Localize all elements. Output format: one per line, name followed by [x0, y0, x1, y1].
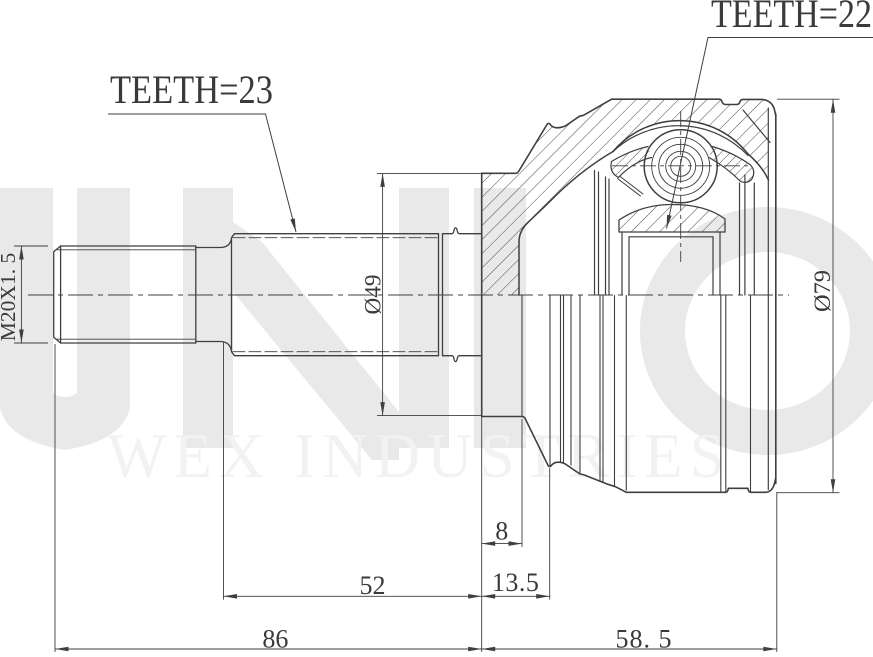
svg-text:52: 52: [360, 571, 386, 600]
svg-text:TEETH=23: TEETH=23: [110, 67, 273, 112]
svg-text:WEX INDUSTRIES: WEX INDUSTRIES: [107, 421, 732, 491]
svg-text:Ø49: Ø49: [361, 275, 386, 315]
svg-text:TEETH=22: TEETH=22: [711, 0, 872, 36]
svg-text:86: 86: [262, 625, 288, 654]
svg-text:58. 5: 58. 5: [616, 625, 673, 654]
svg-text:13.5: 13.5: [492, 568, 540, 597]
svg-text:8: 8: [495, 517, 508, 546]
svg-text:M20X1. 5: M20X1. 5: [0, 253, 20, 341]
svg-text:Ø79: Ø79: [810, 270, 835, 312]
